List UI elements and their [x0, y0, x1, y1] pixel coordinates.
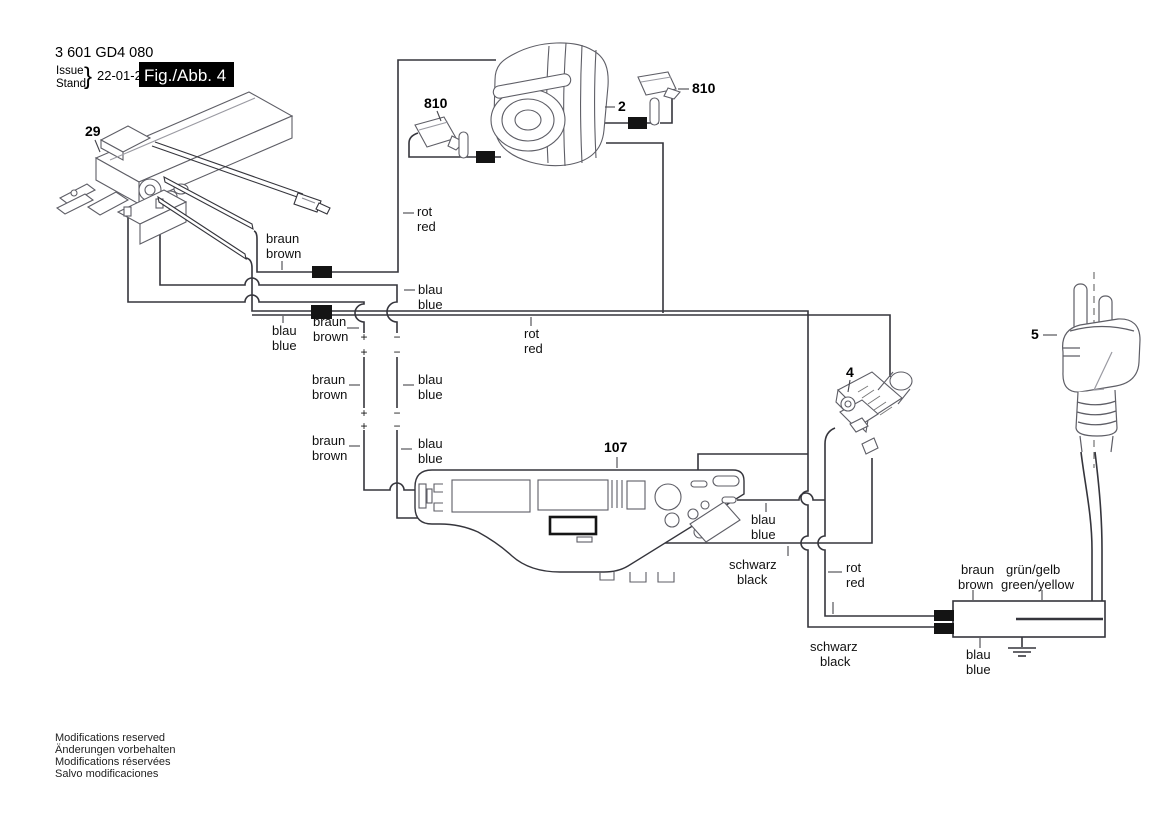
footer-line-1: Modifications reserved	[55, 732, 165, 744]
minus-mark: −	[393, 330, 400, 344]
wire-label-blue: blue	[418, 451, 443, 466]
wire-label-braun: braun	[266, 231, 299, 246]
wire-label-brown: brown	[958, 577, 993, 592]
wire-blau-pcb-module	[737, 493, 825, 500]
brush-right-number: 810	[692, 80, 716, 96]
wire-label-braun: braun	[313, 314, 346, 329]
cord-line-right	[1095, 452, 1102, 601]
wire-label-blau: blau	[272, 323, 297, 338]
wire-label-braun: braun	[961, 562, 994, 577]
wire-rot-module-box	[818, 428, 953, 616]
brush-left-number: 810	[424, 95, 448, 111]
footer-line-3: Modifications réservées	[55, 756, 171, 768]
wiring-diagram: 3 601 GD4 080 Issue Stand } 22-01-26 Fig…	[0, 0, 1169, 826]
wire-label-black: black	[737, 572, 768, 587]
earth-ground-icon	[1008, 637, 1036, 656]
wire-label-blau: blau	[418, 372, 443, 387]
wire-label-blau: blau	[966, 647, 991, 662]
wire-label-brown: brown	[312, 448, 347, 463]
plug-number: 5	[1031, 326, 1039, 342]
wire-label-blue: blue	[418, 387, 443, 402]
wire-label-brown: brown	[313, 329, 348, 344]
wire-label-red: red	[846, 575, 865, 590]
brush-left-drawing	[415, 117, 468, 158]
wire-label-schwarz: schwarz	[810, 639, 858, 654]
footer-line-4: Salvo modificaciones	[55, 768, 159, 780]
figure-label: Fig./Abb. 4	[144, 66, 226, 85]
field-number: 2	[618, 98, 626, 114]
module-drawing	[836, 372, 912, 454]
field-coil-drawing	[491, 43, 608, 166]
cord-line-left	[1081, 452, 1092, 601]
wire-label-schwarz: schwarz	[729, 557, 777, 572]
plus-mark: +	[360, 345, 367, 359]
wire-label-blau: blau	[418, 282, 443, 297]
wire-field-right	[606, 143, 663, 313]
wire-label-red: red	[524, 341, 543, 356]
wire-label-red: red	[417, 219, 436, 234]
polarity-marks: + + + + − − − −	[360, 330, 400, 433]
wire-label-blue: blue	[418, 297, 443, 312]
wire-label-green-yellow: green/yellow	[1001, 577, 1075, 592]
module-number: 4	[846, 364, 854, 380]
plus-mark: +	[360, 406, 367, 420]
wire-label-braun: braun	[312, 433, 345, 448]
wire-label-brown: brown	[266, 246, 301, 261]
wire-label-rot: rot	[846, 560, 862, 575]
pcb-drawing	[415, 470, 744, 582]
brace-glyph: }	[84, 63, 92, 90]
stand-label: Stand	[56, 78, 86, 90]
footer-notice: Modifications reserved Änderungen vorbeh…	[55, 732, 175, 780]
plug-drawing	[1063, 272, 1140, 468]
schematic-page: 3 601 GD4 080 Issue Stand } 22-01-26 Fig…	[0, 0, 1169, 826]
ferrite-bead	[934, 610, 954, 621]
wire-label-rot: rot	[417, 204, 433, 219]
wire-label-rot: rot	[524, 326, 540, 341]
plus-mark: +	[360, 330, 367, 344]
ferrite-bead	[312, 266, 332, 278]
wire-label-black: black	[820, 654, 851, 669]
wire-label-blue: blue	[966, 662, 991, 677]
wire-brush-right-b	[660, 97, 672, 123]
wire-label-blau: blau	[751, 512, 776, 527]
pcb-number: 107	[604, 439, 628, 455]
wire-label-blue: blue	[272, 338, 297, 353]
wire-label-blau: blau	[418, 436, 443, 451]
minus-mark: −	[393, 406, 400, 420]
title-block: 3 601 GD4 080 Issue Stand } 22-01-26 Fig…	[55, 45, 234, 90]
wire-label-brown: brown	[312, 387, 347, 402]
minus-mark: −	[393, 345, 400, 359]
footer-line-2: Änderungen vorbehalten	[55, 744, 175, 756]
ferrite-bead	[476, 151, 495, 163]
issue-label: Issue	[56, 65, 84, 77]
minus-mark: −	[393, 419, 400, 433]
wire-rot-long	[252, 315, 890, 377]
wire-label-gruen-gelb: grün/gelb	[1006, 562, 1060, 577]
ferrite-bead	[628, 117, 647, 129]
part-number: 3 601 GD4 080	[55, 45, 153, 61]
ferrite-bead	[934, 623, 954, 634]
wire-label-braun: braun	[312, 372, 345, 387]
switch-number: 29	[85, 123, 101, 139]
plus-mark: +	[360, 419, 367, 433]
wire-label-blue: blue	[751, 527, 776, 542]
